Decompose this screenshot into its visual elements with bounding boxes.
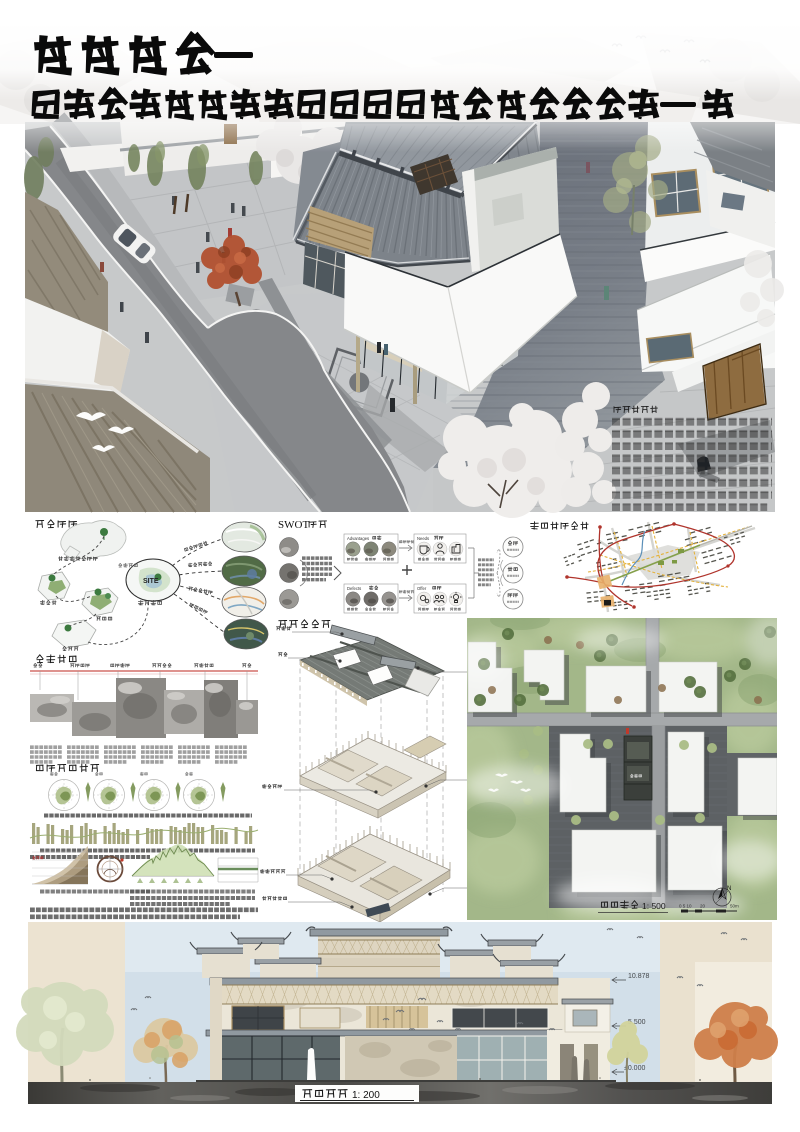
svg-text:Defects: Defects [347,586,361,591]
svg-text:SITE: SITE [143,578,159,585]
svg-text:Offer: Offer [417,586,427,591]
svg-text:1: 500: 1: 500 [642,901,666,911]
svg-text:10.878: 10.878 [628,973,650,980]
svg-text:1: 200: 1: 200 [352,1090,380,1101]
svg-text:N: N [727,886,731,892]
svg-text:0 5 10: 0 5 10 [679,904,692,909]
svg-text:Needs: Needs [417,536,429,541]
svg-text:SWOT: SWOT [278,519,309,531]
svg-text:50m: 50m [730,904,739,909]
svg-text:20: 20 [700,904,706,909]
svg-text:Advantages: Advantages [347,536,369,541]
